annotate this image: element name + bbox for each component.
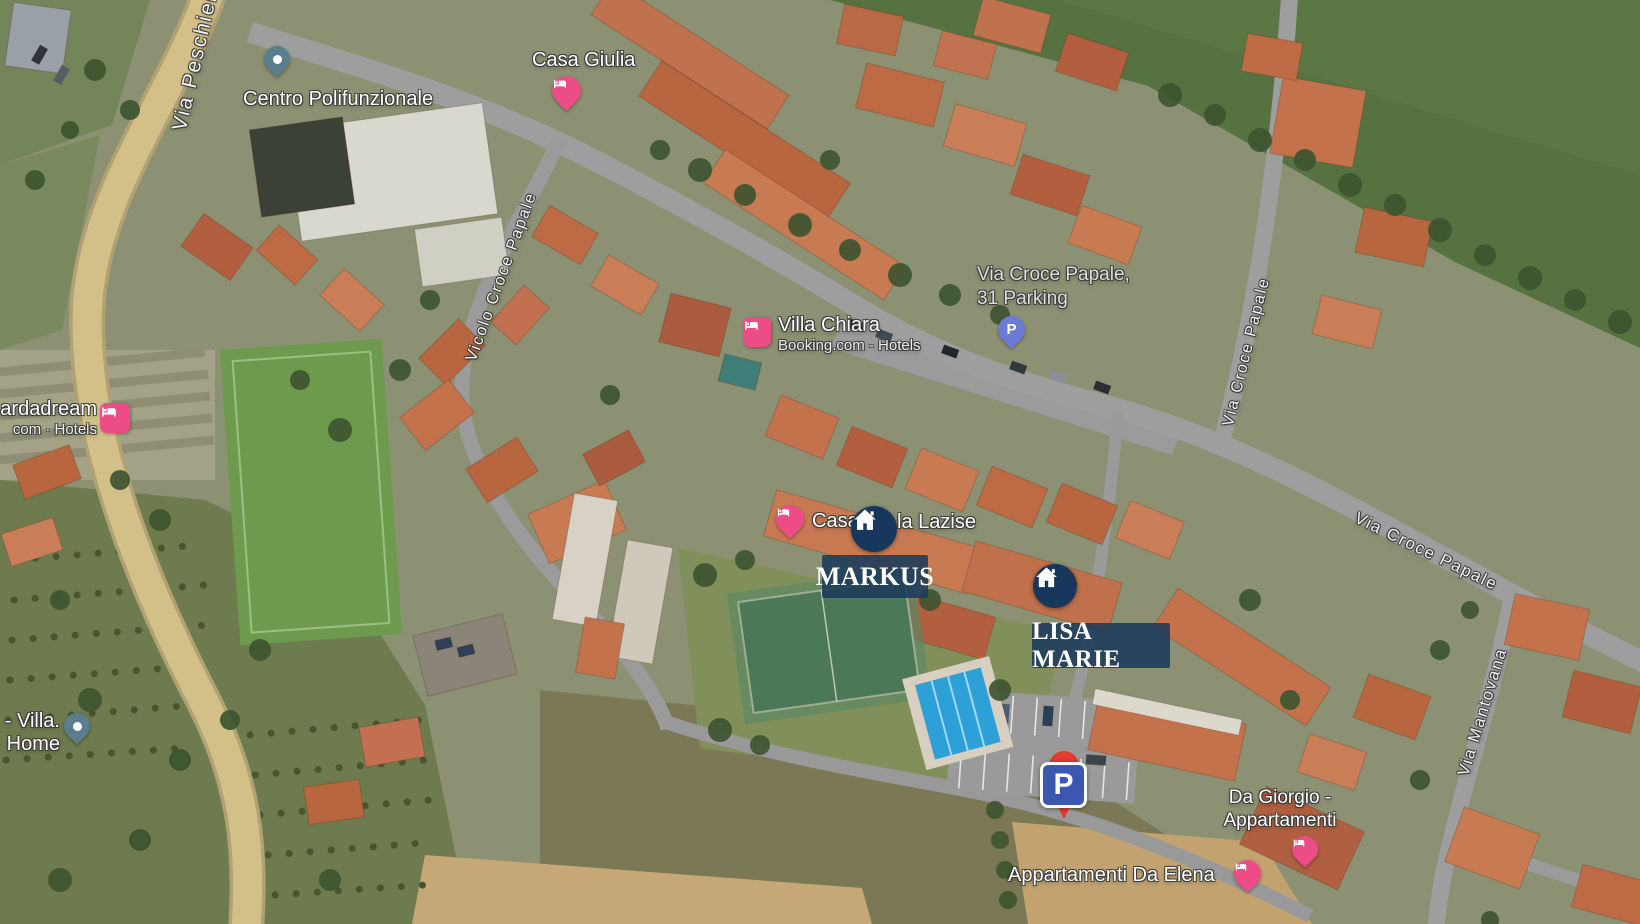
da-elena-pin[interactable] [1228,854,1266,892]
marker-markus-house[interactable] [851,506,897,552]
da-giorgio-pin[interactable] [1287,831,1324,868]
poi-sublabel-villa-chiara[interactable]: Booking.com - Hotels [778,337,921,354]
satellite-map[interactable]: Via Peschiera Vicolo Croce Papale Via Cr… [0,0,1640,924]
parking-p-icon: P [998,316,1025,343]
villa-home-pin[interactable] [59,708,96,745]
hotel-bed-icon [776,505,804,533]
casa-giulia-pin[interactable] [546,70,587,111]
dot-pin-icon [264,46,290,72]
hotel-bed-icon [1292,836,1318,862]
poi-label-casa-giulia[interactable]: Casa Giulia [532,49,635,72]
satellite-imagery [0,0,1640,924]
poi-label-da-giorgio[interactable]: Da Giorgio - Appartamenti [1180,786,1380,832]
hotel-bed-icon [552,76,581,105]
poi-label-parking31-line2[interactable]: 31 Parking [977,288,1068,310]
markus-label-text: MARKUS [816,562,935,592]
casa-lazise-pin[interactable] [770,499,810,539]
gardadream-hotel-icon[interactable] [100,403,130,433]
centro-polifunzionale-pin[interactable] [259,41,296,78]
marker-lisa-marie-label[interactable]: LISA MARIE [1032,623,1170,668]
parking-p-letter: P [1053,768,1073,802]
parking-sign: P [1040,762,1087,808]
poi-label-villa-home[interactable]: - Villa. Home [0,710,60,756]
poi-label-casa-lazise-right[interactable]: la Lazise [897,511,976,534]
parking31-pin[interactable]: P [992,310,1030,348]
poi-label-da-elena[interactable]: Appartamenti Da Elena [1008,864,1215,887]
villa-chiara-hotel-icon[interactable] [743,317,771,347]
marker-markus-label[interactable]: MARKUS [822,555,928,598]
hotel-bed-icon [1234,860,1261,887]
poi-label-centro-polifunzionale[interactable]: Centro Polifunzionale [243,88,433,111]
poi-label-gardadream[interactable]: ardadream com · Hotels [0,398,97,438]
poi-label-parking31-line1[interactable]: Via Croce Papale, [977,264,1130,286]
poi-label-villa-chiara[interactable]: Villa Chiara [778,314,880,337]
lisa-marie-label-text: LISA MARIE [1032,618,1170,674]
parking-lot-marker[interactable]: P [1032,745,1096,825]
dot-pin-icon [64,713,90,739]
marker-lisa-marie-house[interactable] [1033,564,1077,608]
